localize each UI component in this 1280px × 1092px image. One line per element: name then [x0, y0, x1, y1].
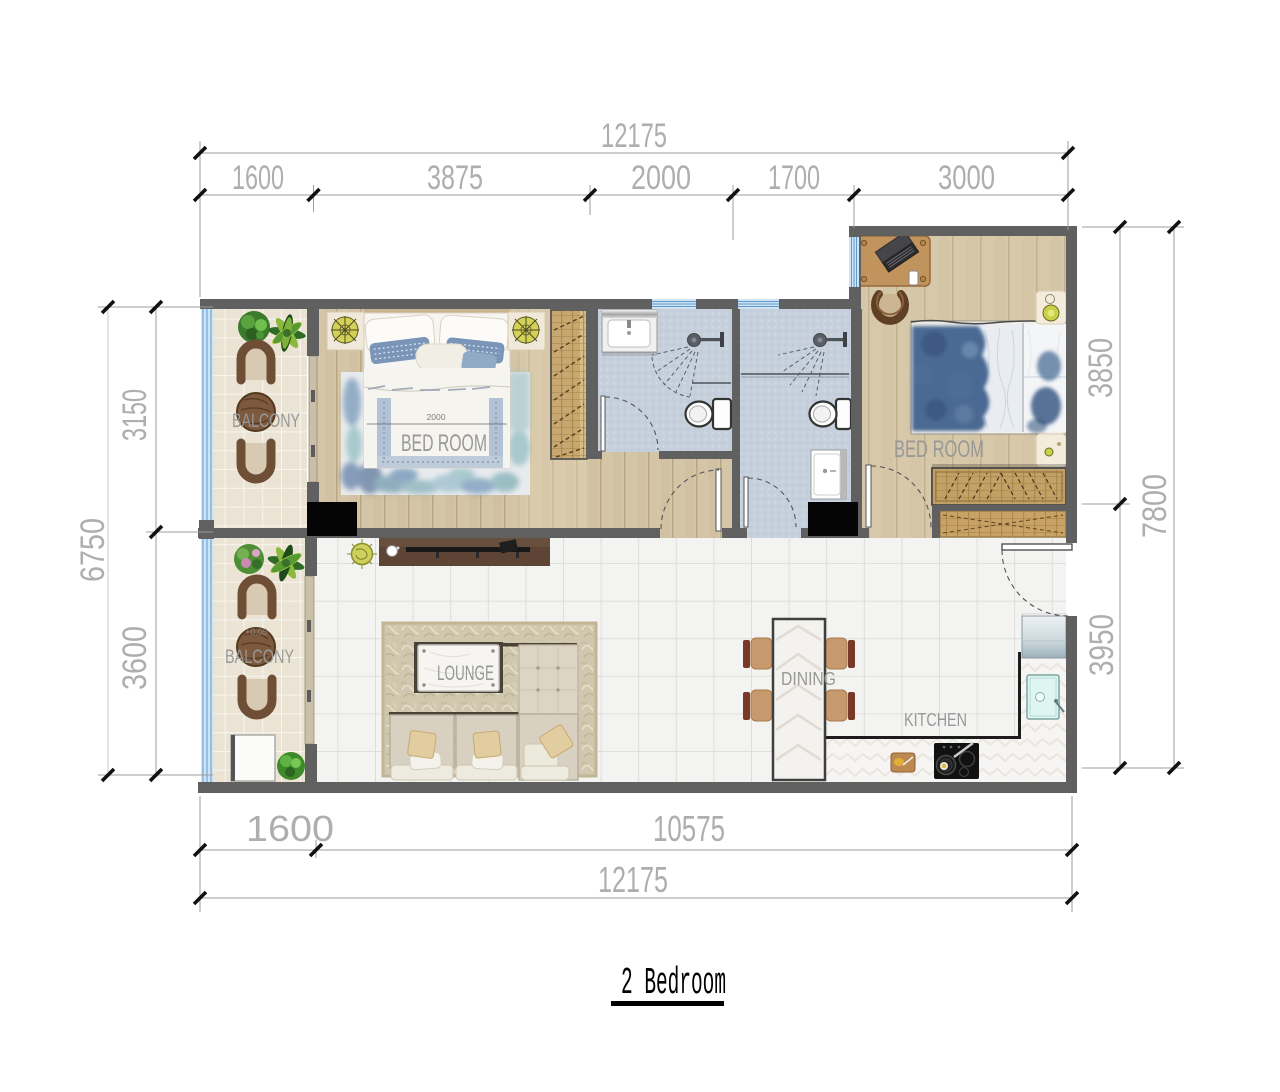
svg-text:12175: 12175	[598, 859, 668, 900]
svg-text:3600: 3600	[116, 626, 154, 690]
svg-text:1700: 1700	[768, 159, 820, 197]
svg-text:12175: 12175	[601, 117, 667, 155]
svg-text:10575: 10575	[653, 808, 725, 849]
svg-text:LOUNGE: LOUNGE	[437, 662, 494, 685]
svg-text:DINING: DINING	[781, 669, 836, 689]
svg-text:3950: 3950	[1083, 614, 1121, 676]
svg-text:1600: 1600	[232, 159, 284, 197]
svg-text:7800: 7800	[1136, 474, 1174, 538]
svg-text:BED ROOM: BED ROOM	[894, 436, 984, 463]
svg-text:2000: 2000	[631, 159, 691, 197]
svg-text:BALCONY: BALCONY	[225, 647, 294, 668]
svg-text:3000: 3000	[938, 159, 995, 197]
svg-text:KITCHEN: KITCHEN	[904, 710, 967, 730]
svg-text:3850: 3850	[1082, 338, 1120, 398]
svg-text:3875: 3875	[427, 159, 483, 197]
svg-text:3150: 3150	[116, 389, 154, 441]
svg-text:BED ROOM: BED ROOM	[401, 430, 487, 457]
svg-text:2000: 2000	[427, 412, 446, 422]
svg-text:+0.05: +0.05	[245, 627, 268, 637]
svg-text:BALCONY: BALCONY	[232, 411, 300, 432]
svg-text:6750: 6750	[74, 518, 112, 582]
svg-text:1600: 1600	[246, 808, 334, 849]
svg-text:2 Bedroom: 2 Bedroom	[621, 962, 726, 1005]
